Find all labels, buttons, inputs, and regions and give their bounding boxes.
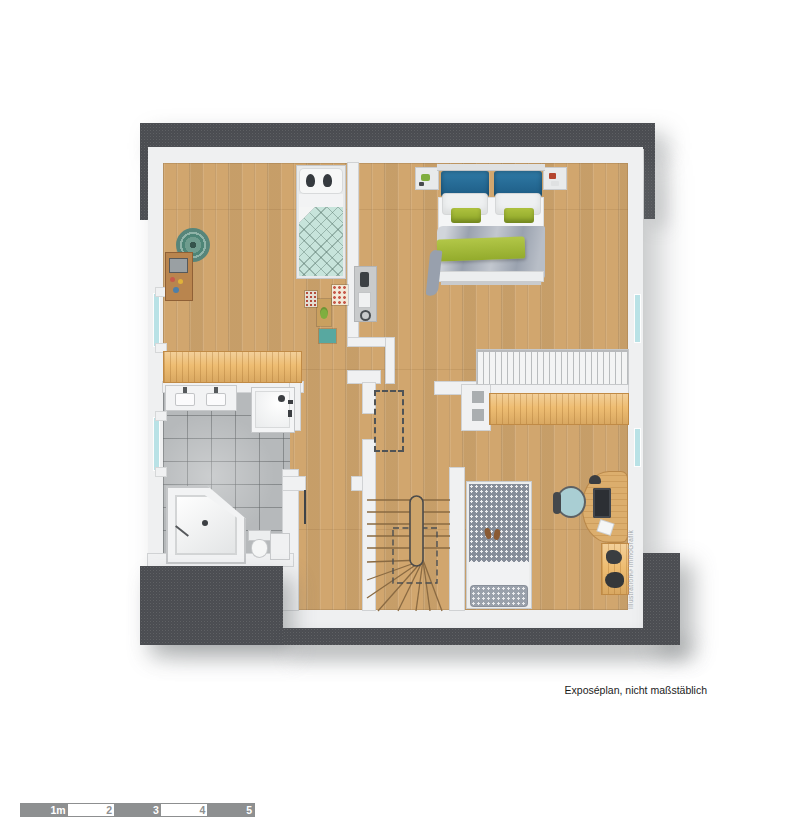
single-bed — [467, 482, 531, 608]
pillow — [471, 586, 527, 606]
faucet-icon — [214, 387, 218, 393]
bathroom-cabinet — [271, 534, 289, 559]
zigzag-duvet — [299, 207, 343, 276]
toy-card — [305, 291, 317, 307]
window-west-1 — [154, 294, 159, 346]
penguin-icon — [306, 174, 315, 187]
roof-surface-bottom-left — [140, 566, 283, 645]
scale-label: 1m — [50, 804, 65, 816]
window-reveal — [156, 468, 166, 476]
roof-surface-top — [140, 123, 655, 149]
plant-icon — [421, 174, 430, 181]
toy-dot — [173, 287, 179, 293]
toy-figure-icon — [605, 572, 624, 588]
penguin-icon — [323, 174, 332, 187]
footboard — [439, 272, 543, 281]
ceiling-height-dashed-line — [374, 390, 404, 452]
paper-icon — [598, 520, 614, 534]
closet-door-leaf — [304, 490, 306, 524]
book-icon — [419, 182, 424, 186]
bed-sheet — [299, 194, 343, 207]
window-east-2 — [635, 429, 640, 466]
toy-board — [332, 285, 348, 305]
scale-label: 3 — [153, 804, 159, 816]
double-bed — [437, 164, 545, 286]
office-chair — [556, 486, 586, 518]
sink — [175, 393, 195, 406]
bed-sheet — [469, 562, 529, 588]
faucet-icon — [183, 387, 187, 393]
wall-alcove-bottom — [348, 371, 380, 383]
toy-screen — [170, 259, 187, 272]
roof-surface-bottom — [283, 628, 680, 645]
scale-label: 4 — [200, 804, 206, 816]
watermark: Illustration©immoGrafik — [627, 517, 634, 609]
drain-icon — [202, 520, 208, 526]
scale-segment: 3 — [114, 804, 161, 816]
toilet — [249, 531, 270, 558]
double-vanity — [166, 386, 236, 410]
headboard — [437, 164, 545, 170]
wall-bedroom2-west — [450, 468, 464, 610]
stair-handrail — [410, 496, 423, 566]
desk — [583, 472, 627, 542]
toy-figure-icon — [606, 550, 622, 564]
clock-icon — [549, 173, 556, 179]
knee-wall-bench-child-room — [164, 352, 301, 382]
floor-plan-page: Illustration©immoGrafik Exposéplan, nich… — [0, 0, 794, 828]
nightstand-left — [416, 168, 438, 189]
headset-icon — [589, 475, 601, 484]
penguin-pillow — [300, 169, 342, 193]
green-cushion — [504, 208, 534, 223]
green-blanket — [437, 236, 526, 261]
chair-backrest — [553, 492, 561, 514]
winder-staircase — [366, 490, 451, 612]
window-reveal — [156, 288, 166, 296]
avocado-toy-icon — [320, 307, 328, 319]
window-reveal — [156, 344, 166, 352]
roof-surface-right — [644, 146, 655, 219]
shower-fixture-icon — [288, 410, 292, 417]
scale-segment: 4 — [161, 804, 208, 816]
scale-label: 5 — [246, 804, 252, 816]
wall-closet-north-left — [283, 477, 305, 490]
toy-tray — [317, 299, 331, 326]
hall-wall-shelf — [355, 267, 376, 321]
toy-box — [319, 329, 336, 343]
scale-segment: 5 — [207, 804, 254, 816]
laptop-icon — [593, 488, 611, 518]
green-cushion — [451, 208, 481, 223]
scale-segment: 1m — [21, 804, 68, 816]
scale-bar: 1m 2 3 4 5 — [20, 803, 255, 817]
toy-dot — [178, 279, 183, 284]
nightstand-right — [544, 168, 566, 189]
child-bed — [297, 166, 345, 278]
wardrobe — [477, 350, 628, 384]
book-icon — [551, 181, 559, 186]
wall-alcove-stub — [386, 338, 394, 383]
bed-frame — [441, 281, 541, 285]
card-icon — [359, 293, 370, 307]
window-east-1 — [635, 295, 640, 342]
scale-segment: 2 — [68, 804, 115, 816]
drain-icon — [278, 395, 285, 402]
toy-dot — [170, 277, 175, 282]
patterned-duvet — [469, 484, 529, 562]
niche-shelf-unit — [462, 385, 490, 430]
dresser — [166, 253, 192, 300]
ring-icon — [360, 310, 371, 321]
roof-surface-bottom-right — [643, 553, 680, 645]
toilet-tank — [249, 531, 270, 540]
window-reveal — [156, 412, 166, 420]
side-table-items — [602, 544, 628, 594]
footnote: Exposéplan, nicht maßstäblich — [565, 684, 707, 696]
shelf-niche — [472, 391, 484, 403]
knee-wall-bench-bedroom2 — [490, 394, 628, 424]
shower — [252, 388, 294, 432]
phone-icon — [360, 272, 369, 287]
window-west-2 — [154, 418, 159, 470]
shelf-niche — [472, 409, 484, 421]
scale-label: 2 — [106, 804, 112, 816]
shower-fixture-icon — [288, 400, 293, 404]
sink — [206, 393, 226, 406]
toilet-bowl — [252, 540, 267, 557]
